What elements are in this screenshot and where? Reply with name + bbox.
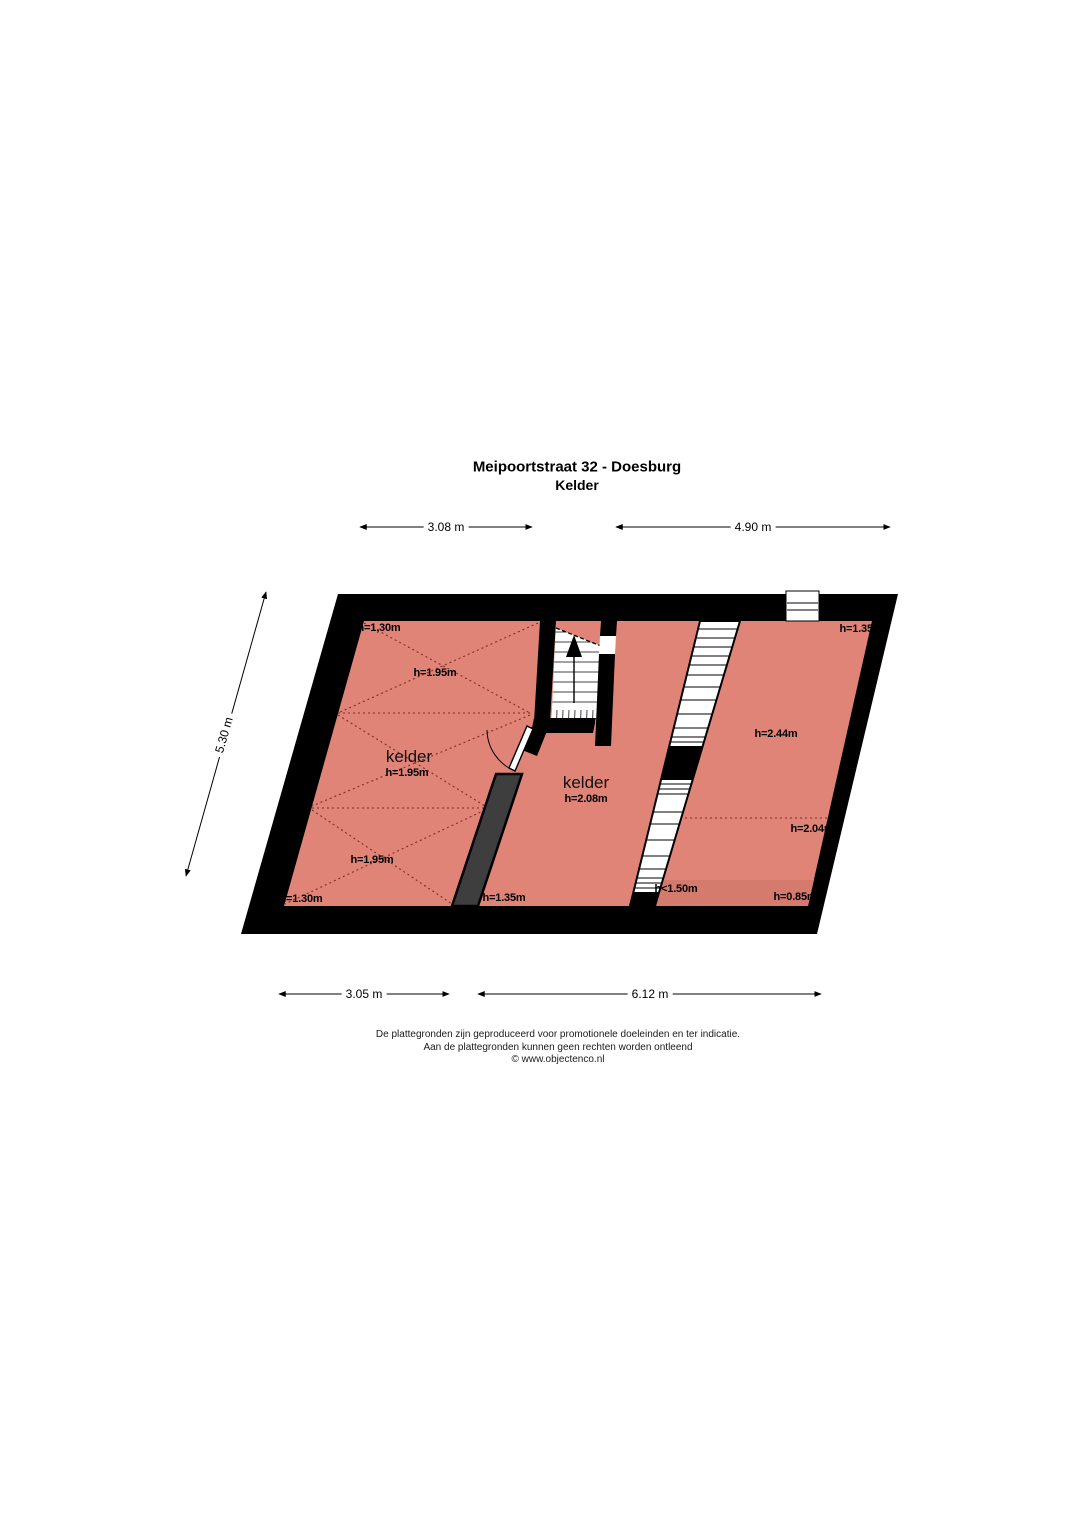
dimension-top-right: 4.90 m bbox=[731, 520, 776, 534]
disclaimer-line-3: © www.objectenco.nl bbox=[278, 1054, 838, 1067]
disclaimer-line-2: Aan de plattegronden kunnen geen rechten… bbox=[278, 1042, 838, 1055]
room-label-middle-kelder: kelder bbox=[563, 773, 609, 793]
height-label: h=2.08m bbox=[565, 793, 608, 805]
floorplan-page: Meipoortstraat 32 - Doesburg Kelder bbox=[0, 0, 1080, 1527]
disclaimer-line-1: De plattegronden zijn geproduceerd voor … bbox=[278, 1029, 838, 1042]
height-label: h=2.04m bbox=[791, 823, 834, 835]
floorplan-drawing bbox=[0, 0, 1080, 1527]
dimension-bottom-right: 6.12 m bbox=[628, 987, 673, 1001]
height-label: h<1.50m bbox=[655, 883, 698, 895]
height-label: h=1.95m bbox=[351, 854, 394, 866]
height-label: h=1,30m bbox=[358, 622, 401, 634]
dimension-top-left: 3.08 m bbox=[424, 520, 469, 534]
stairwell-door-opening bbox=[599, 636, 616, 654]
height-label: h=2.44m bbox=[755, 728, 798, 740]
height-label: h=1.35m bbox=[483, 892, 526, 904]
height-label: h=1.30m bbox=[280, 893, 323, 905]
height-label: h=1.35m bbox=[840, 623, 883, 635]
height-label: h=1.95m bbox=[386, 767, 429, 779]
height-label: h=1.95m bbox=[414, 667, 457, 679]
window bbox=[786, 591, 819, 621]
dimension-bottom-left: 3.05 m bbox=[342, 987, 387, 1001]
height-label: h=0.85m bbox=[774, 891, 817, 903]
disclaimer: De plattegronden zijn geproduceerd voor … bbox=[278, 1029, 838, 1067]
room-label-left-kelder: kelder bbox=[386, 747, 432, 767]
